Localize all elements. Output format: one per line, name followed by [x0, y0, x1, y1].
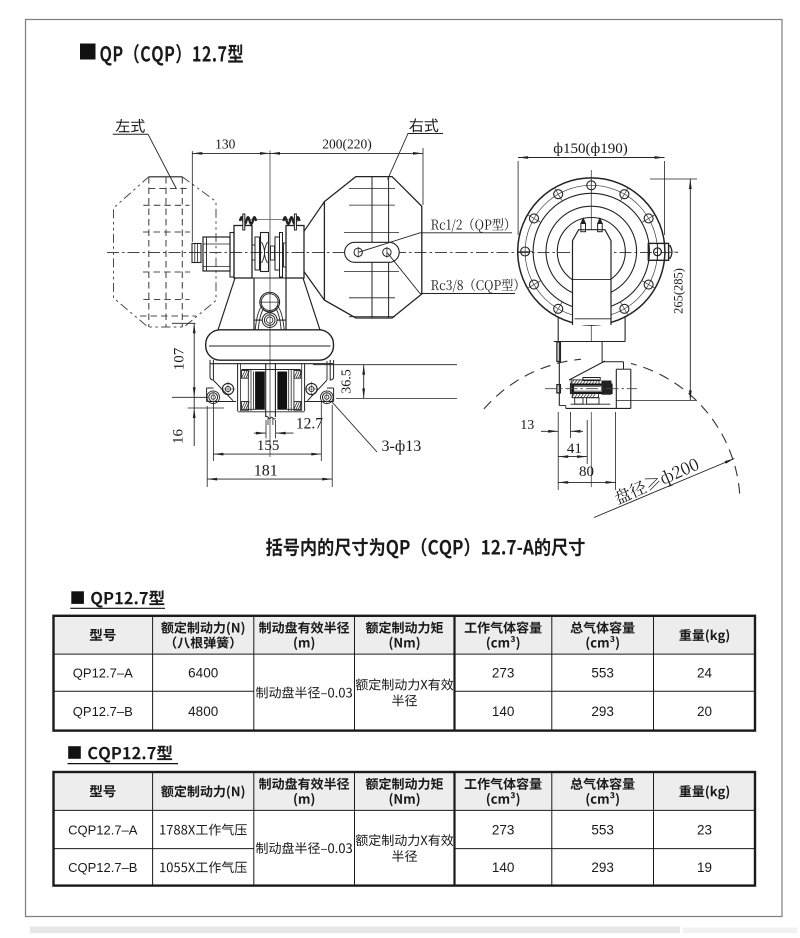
svg-text:QP12.7–B: QP12.7–B [73, 704, 133, 719]
svg-text:140: 140 [492, 860, 515, 875]
svg-text:3-ф13: 3-ф13 [382, 438, 422, 455]
svg-text:CQP12.7–B: CQP12.7–B [68, 860, 137, 875]
svg-text:4800: 4800 [188, 704, 218, 719]
svg-text:155: 155 [257, 438, 280, 454]
svg-text:19: 19 [697, 860, 712, 875]
svg-text:181: 181 [254, 463, 278, 480]
svg-text:QP12.7–A: QP12.7–A [73, 666, 133, 681]
svg-text:107: 107 [172, 347, 188, 370]
svg-text:553: 553 [591, 666, 614, 681]
svg-text:265(285): 265(285) [672, 268, 686, 314]
svg-text:273: 273 [492, 823, 515, 838]
svg-text:12.7: 12.7 [296, 416, 323, 433]
svg-text:24: 24 [697, 666, 713, 681]
svg-text:36.5: 36.5 [340, 369, 355, 394]
svg-text:293: 293 [591, 704, 614, 719]
svg-text:80: 80 [579, 464, 594, 480]
svg-text:23: 23 [697, 823, 712, 838]
svg-text:CQP12.7–A: CQP12.7–A [68, 823, 138, 838]
svg-text:20: 20 [697, 704, 712, 719]
svg-text:140: 140 [492, 704, 515, 719]
svg-text:200(220): 200(220) [322, 137, 372, 152]
svg-text:ф150(ф190): ф150(ф190) [553, 141, 627, 157]
svg-text:16: 16 [170, 429, 186, 445]
svg-text:273: 273 [492, 666, 515, 681]
svg-text:13: 13 [520, 418, 534, 433]
svg-text:41: 41 [567, 441, 582, 457]
svg-text:293: 293 [591, 860, 614, 875]
svg-text:130: 130 [215, 137, 236, 152]
svg-text:553: 553 [591, 823, 614, 838]
svg-text:6400: 6400 [188, 666, 218, 681]
